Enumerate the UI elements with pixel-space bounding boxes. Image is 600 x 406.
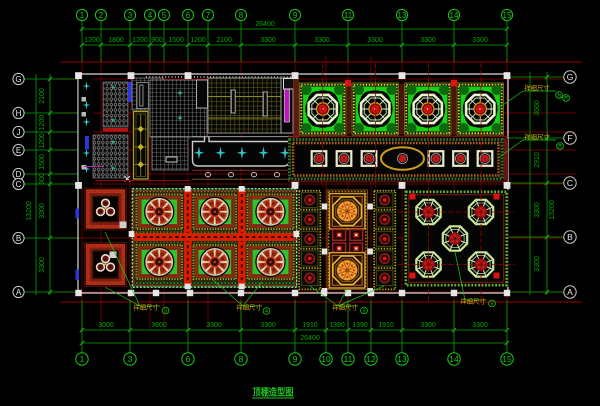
svg-text:C: C xyxy=(16,180,22,189)
svg-text:7: 7 xyxy=(206,11,211,20)
svg-text:F: F xyxy=(567,133,572,143)
svg-text:祥细尺寸: 祥细尺寸 xyxy=(332,303,358,312)
svg-text:3300: 3300 xyxy=(367,37,383,44)
svg-text:1200: 1200 xyxy=(132,37,148,44)
svg-text:2100: 2100 xyxy=(39,88,46,104)
svg-text:祥细尺寸: 祥细尺寸 xyxy=(236,303,262,312)
svg-text:C: C xyxy=(567,178,573,188)
svg-text:1390: 1390 xyxy=(352,322,368,329)
svg-text:14: 14 xyxy=(450,11,459,20)
svg-text:3600: 3600 xyxy=(151,322,167,329)
svg-text:8: 8 xyxy=(239,354,244,364)
svg-text:6: 6 xyxy=(491,302,494,308)
svg-text:2100: 2100 xyxy=(216,37,232,44)
svg-text:3: 3 xyxy=(128,11,133,20)
svg-text:13200: 13200 xyxy=(26,201,33,221)
svg-text:11: 11 xyxy=(344,354,353,364)
svg-text:4: 4 xyxy=(148,11,153,20)
svg-text:3: 3 xyxy=(164,309,167,315)
svg-text:E: E xyxy=(16,146,21,155)
svg-text:9: 9 xyxy=(293,354,298,364)
svg-text:1200: 1200 xyxy=(39,115,46,131)
svg-text:3300: 3300 xyxy=(260,322,276,329)
svg-text:3300: 3300 xyxy=(314,37,330,44)
svg-text:1500: 1500 xyxy=(39,154,46,170)
svg-text:齐: 齐 xyxy=(557,143,562,150)
svg-text:B: B xyxy=(16,234,21,243)
svg-text:G: G xyxy=(567,72,574,82)
svg-text:祥细尺寸: 祥细尺寸 xyxy=(524,132,550,141)
svg-text:9: 9 xyxy=(293,11,298,20)
svg-text:3000: 3000 xyxy=(98,322,114,329)
svg-text:1200: 1200 xyxy=(39,133,46,149)
svg-text:1800: 1800 xyxy=(108,37,124,44)
svg-text:3300: 3300 xyxy=(534,202,541,218)
svg-text:3300: 3300 xyxy=(420,37,436,44)
svg-text:3300: 3300 xyxy=(472,37,488,44)
svg-text:D: D xyxy=(16,170,22,179)
svg-text:G: G xyxy=(15,75,21,84)
svg-text:5: 5 xyxy=(162,11,167,20)
svg-text:13: 13 xyxy=(397,354,407,364)
svg-text:3: 3 xyxy=(128,354,133,364)
svg-text:1910: 1910 xyxy=(378,322,394,329)
svg-text:3300: 3300 xyxy=(472,322,488,329)
svg-text:1910: 1910 xyxy=(302,322,318,329)
svg-text:13: 13 xyxy=(398,11,407,20)
svg-text:祥细尺寸: 祥细尺寸 xyxy=(133,303,159,312)
svg-text:26400: 26400 xyxy=(255,21,275,28)
svg-text:3300: 3300 xyxy=(39,203,46,219)
svg-text:26400: 26400 xyxy=(300,335,320,342)
svg-text:1200: 1200 xyxy=(84,37,100,44)
svg-text:3300: 3300 xyxy=(534,256,541,272)
svg-text:3300: 3300 xyxy=(206,322,222,329)
svg-text:为: 为 xyxy=(556,92,561,99)
svg-text:6: 6 xyxy=(186,354,191,364)
svg-text:12: 12 xyxy=(366,354,376,364)
svg-text:15: 15 xyxy=(503,11,512,20)
svg-text:A: A xyxy=(567,287,573,297)
svg-text:15: 15 xyxy=(502,354,512,364)
svg-text:300: 300 xyxy=(39,173,46,185)
svg-text:1: 1 xyxy=(80,354,85,364)
svg-text:3300: 3300 xyxy=(260,37,276,44)
svg-text:B: B xyxy=(567,232,573,242)
svg-text:8: 8 xyxy=(239,11,244,20)
svg-text:1500: 1500 xyxy=(168,37,184,44)
svg-text:4: 4 xyxy=(265,309,268,315)
svg-text:H: H xyxy=(16,109,22,118)
svg-text:祥细尺寸: 祥细尺寸 xyxy=(524,83,550,92)
svg-text:10: 10 xyxy=(321,354,331,364)
svg-text:3300: 3300 xyxy=(420,322,436,329)
svg-text:11: 11 xyxy=(344,11,353,20)
svg-text:900: 900 xyxy=(151,37,163,44)
svg-text:J: J xyxy=(17,128,21,137)
svg-text:13200: 13200 xyxy=(549,200,556,220)
svg-text:1390: 1390 xyxy=(329,322,345,329)
svg-text:14: 14 xyxy=(449,354,459,364)
svg-text:1200: 1200 xyxy=(190,37,206,44)
svg-text:齐: 齐 xyxy=(563,95,568,102)
svg-text:5: 5 xyxy=(363,309,366,315)
svg-text:A: A xyxy=(16,288,22,297)
svg-text:3600: 3600 xyxy=(534,100,541,116)
svg-text:2: 2 xyxy=(99,11,104,20)
svg-text:1: 1 xyxy=(80,11,85,20)
svg-text:2910: 2910 xyxy=(534,152,541,168)
svg-text:3300: 3300 xyxy=(39,257,46,273)
svg-text:祥细尺寸: 祥细尺寸 xyxy=(460,297,486,306)
svg-text:6: 6 xyxy=(186,11,191,20)
svg-text:顶棚造型图: 顶棚造型图 xyxy=(253,387,294,399)
